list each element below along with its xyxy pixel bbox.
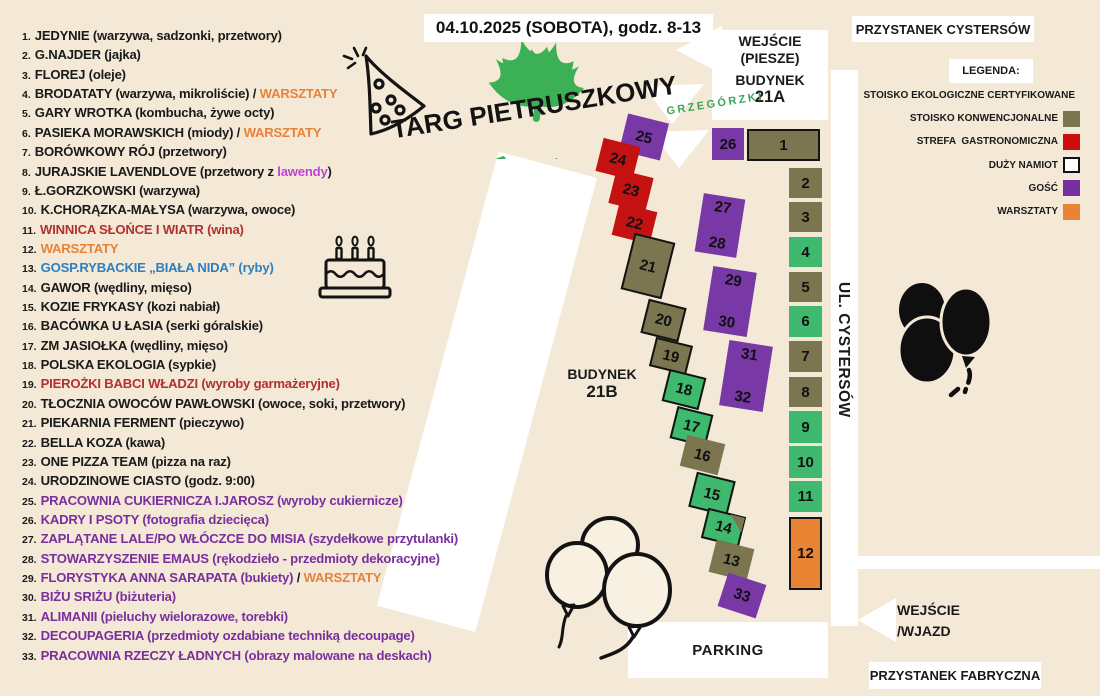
stall-number: 1 [779,137,787,154]
stall-number: 4 [801,244,809,261]
stall-number: 8 [801,384,809,401]
vendor-number: 26. [22,515,37,527]
vendor-text: JURAJSKIE LAVENDLOVE (przetwory z [35,164,278,179]
stall-number: 11 [798,488,814,505]
vendor-text: PIEROŻKI BABCI WŁADZI (wyroby garmażeryj… [41,376,340,391]
stall-9: 9 [789,411,822,443]
legend-swatch-guest [1063,180,1080,196]
legend-swatch-workshop [1063,204,1080,220]
stall-12: 12 [789,517,822,590]
stall-number: 12 [797,545,814,562]
vendor-item-11: 11.WINNICA SŁOŃCE I WIATR (wina) [22,220,458,239]
stall-number: 23 [621,180,641,201]
stall-number: 13 [721,550,741,571]
vendor-text: BRODATATY (warzywa, mikroliście) / [35,86,260,101]
vendor-number: 33. [22,651,37,663]
vendor-text: PRACOWNIA CUKIERNICZA I.JAROSZ (wyroby c… [41,493,403,508]
stall-29-30: 2930 [703,266,757,337]
vendor-item-2: 2.G.NAJDER (jajka) [22,45,458,64]
stall-number: 26 [720,136,737,153]
legend-label: STOISKO EKOLOGICZNE CERTYFIKOWANE [864,90,1076,101]
stall-21: 21 [621,233,676,299]
vendor-item-29: 29.FLORYSTYKA ANNA SARAPATA (bukiety) / … [22,568,458,587]
stall-8: 8 [789,377,822,407]
stall-14-wedge [727,514,745,532]
vendor-item-27: 27.ZAPLĄTANE LALE/PO WŁÓCZCE DO MISIA (s… [22,529,458,548]
vendor-text: STOWARZYSZENIE EMAUS (rękodzieło - przed… [41,551,440,566]
bus-stop-fabryczna: PRZYSTANEK FABRYCZNA [869,662,1041,689]
stall-number: 21 [638,256,658,277]
vendor-number: 29. [22,573,37,585]
vendor-number: 14. [22,283,37,295]
stall-33: 33 [718,573,767,619]
bus-stop-cystersow: PRZYSTANEK CYSTERSÓW [852,16,1034,42]
vendor-number: 3. [22,70,31,82]
legend-label: WARSZTATY [997,206,1058,217]
stall-10: 10 [789,446,822,478]
legend-title: LEGENDA: [949,59,1033,83]
legend-label: STOISKO KONWENCJONALNE [910,113,1058,124]
vendor-item-26: 26.KADRY I PSOTY (fotografia dziecięca) [22,510,458,529]
vendor-item-12: 12.WARSZTATY [22,239,458,258]
drive-entrance-line1: WEJŚCIE [897,600,960,621]
vendor-text: ZAPLĄTANE LALE/PO WŁÓCZCE DO MISIA (szyd… [41,531,458,546]
stall-number: 2 [801,175,809,192]
vendor-item-13: 13.GOSP.RYBACKIE „BIAŁA NIDA” (ryby) [22,258,458,277]
vendor-number: 22. [22,438,37,450]
stall-31-32: 3132 [719,340,773,412]
vendor-text: PRACOWNIA RZECZY ŁADNYCH (obrazy malowan… [41,648,432,663]
legend-item: WARSZTATY [880,200,1080,223]
stall-19: 19 [649,337,693,375]
vendor-item-16: 16.BACÓWKA U ŁASIA (serki góralskie) [22,316,458,335]
vendor-text: FLORYSTYKA ANNA SARAPATA (bukiety) [41,570,297,585]
stall-15: 15 [688,472,736,517]
vendor-number: 30. [22,592,37,604]
vendor-text: BACÓWKA U ŁASIA (serki góralskie) [41,318,263,333]
vendor-text: WARSZTATY [244,125,322,140]
stall-number: 9 [801,419,809,436]
legend-swatch-tent [1063,157,1080,173]
building-21b-name: BUDYNEK [560,366,644,383]
vendor-text: ONE PIZZA TEAM (pizza na raz) [41,454,231,469]
vendor-text: GAWOR (wędliny, mięso) [41,280,192,295]
vendor-text: ZM JASIOŁKA (wędliny, mięso) [41,338,228,353]
drive-entrance-line2: /WJAZD [897,621,960,642]
vendor-number: 9. [22,186,31,198]
stall-6: 6 [789,306,822,337]
stall-23: 23 [608,169,653,212]
vendor-number: 6. [22,128,31,140]
vendor-number: 17. [22,341,37,353]
vendor-text: URODZINOWE CIASTO (godz. 9:00) [41,473,255,488]
vendor-item-10: 10.K.CHORĄZKA-MAŁYSA (warzywa, owoce) [22,200,458,219]
stall-number: 14 [713,517,733,538]
vendor-number: 13. [22,263,37,275]
vendor-item-1: 1.JEDYNIE (warzywa, sadzonki, przetwory) [22,26,458,45]
vendor-item-5: 5.GARY WROTKA (kombucha, żywe octy) [22,103,458,122]
vendor-text: WINNICA SŁOŃCE I WIATR (wina) [40,222,244,237]
vendor-number: 7. [22,147,31,159]
stall-18: 18 [662,369,707,410]
vendor-number: 10. [22,205,37,217]
stall-number: 18 [674,379,694,400]
stall-7: 7 [789,341,822,372]
arrow-down-path-icon [651,130,711,168]
street-cystersow-label: UL. CYSTERSÓW [834,282,852,418]
vendor-item-32: 32.DECOUPAGERIA (przedmioty ozdabiane te… [22,626,458,645]
vendor-number: 18. [22,360,37,372]
vendor-number: 1. [22,31,31,43]
stall-13: 13 [709,540,755,581]
stall-number: 27 [713,199,732,216]
legend-label: GOŚĆ [1029,183,1058,194]
stall-11: 11 [789,481,822,512]
stall-22: 22 [612,203,658,244]
stall-number: 31 [740,346,759,363]
pedestrian-entrance-line1: WEJŚCIE [712,33,828,50]
parking-label: PARKING [692,642,764,659]
vendor-text: WARSZTATY [260,86,338,101]
vendor-number: 27. [22,534,37,546]
vendor-text: FLOREJ (oleje) [35,67,126,82]
legend-label: STREFA GASTRONOMICZNA [917,136,1058,147]
vendor-text: G.NAJDER (jajka) [35,47,141,62]
vendor-text: TŁOCZNIA OWOCÓW PAWŁOWSKI (owoce, soki, … [41,396,406,411]
stall-number: 29 [724,272,743,289]
vendor-text: WARSZTATY [41,241,119,256]
stall-4: 4 [789,237,822,267]
vendor-item-21: 21.PIEKARNIA FERMENT (pieczywo) [22,413,458,432]
vendor-item-15: 15.KOZIE FRYKASY (kozi nabiał) [22,297,458,316]
balloons-outline-icon [533,505,693,665]
vendor-item-23: 23.ONE PIZZA TEAM (pizza na raz) [22,452,458,471]
vendor-text: Ł.GORZKOWSKI (warzywa) [35,183,200,198]
stall-number: 15 [702,484,722,505]
vendor-text: BORÓWKOWY RÓJ (przetwory) [35,144,227,159]
vendor-number: 2. [22,50,31,62]
vendor-item-25: 25.PRACOWNIA CUKIERNICZA I.JAROSZ (wyrob… [22,491,458,510]
vendor-text: lawendy [277,164,327,179]
vendor-number: 15. [22,302,37,314]
vendor-text: / [297,570,304,585]
stall-number: 22 [624,213,644,234]
vendor-item-7: 7.BORÓWKOWY RÓJ (przetwory) [22,142,458,161]
stall-number: 5 [801,279,809,296]
stall-14: 14 [701,508,746,548]
stall-5: 5 [789,272,822,302]
stall-number: 32 [733,389,752,406]
legend-label: DUŻY NAMIOT [989,160,1058,171]
vendor-number: 23. [22,457,37,469]
vendor-text: PIEKARNIA FERMENT (pieczywo) [41,415,244,430]
stall-number: 19 [661,346,681,367]
vendor-list: 1.JEDYNIE (warzywa, sadzonki, przetwory)… [22,26,458,665]
vendor-text: BIŻU SRIŻU (biżuteria) [41,589,176,604]
vendor-text: KOZIE FRYKASY (kozi nabiał) [41,299,220,314]
building-21a-name: BUDYNEK [712,72,828,88]
vendor-text: ALIMANII (pieluchy wielorazowe, torebki) [41,609,288,624]
vendor-number: 31. [22,612,37,624]
vendor-item-33: 33.PRACOWNIA RZECZY ŁADNYCH (obrazy malo… [22,646,458,665]
stall-1: 1 [747,129,820,161]
vendor-number: 4. [22,89,31,101]
stall-number: 28 [708,235,727,252]
pedestrian-entrance-label: WEJŚCIE (PIESZE) [712,33,828,67]
pedestrian-entrance-line2: (PIESZE) [712,50,828,67]
vendor-text: ) [328,164,332,179]
vendor-number: 20. [22,399,37,411]
stall-number: 16 [692,445,712,466]
vendor-number: 24. [22,476,37,488]
legend-item: STREFA GASTRONOMICZNA [880,130,1080,153]
stall-number: 10 [797,454,814,471]
vendor-number: 19. [22,379,37,391]
vendor-item-19: 19.PIEROŻKI BABCI WŁADZI (wyroby garmaże… [22,374,458,393]
vendor-text: GOSP.RYBACKIE „BIAŁA NIDA” (ryby) [41,260,274,275]
vendor-number: 32. [22,631,37,643]
drive-entrance-label: WEJŚCIE /WJAZD [897,600,960,642]
building-21b-number: 21B [560,383,644,401]
stall-17: 17 [670,406,714,447]
stall-number: 30 [717,314,736,331]
stall-2: 2 [789,168,822,198]
stall-3: 3 [789,202,822,232]
legend-swatch-gastro [1063,134,1080,150]
legend-item: STOISKO EKOLOGICZNE CERTYFIKOWANE [880,84,1080,107]
vendor-number: 5. [22,108,31,120]
arrow-left-drive-icon [858,598,896,642]
vendor-item-8: 8.JURAJSKIE LAVENDLOVE (przetwory z lawe… [22,162,458,181]
legend-item: GOŚĆ [880,177,1080,200]
vendor-text: BELLA KOZA (kawa) [41,435,165,450]
stall-number: 17 [681,416,701,437]
vendor-item-20: 20.TŁOCZNIA OWOCÓW PAWŁOWSKI (owoce, sok… [22,394,458,413]
vendor-item-28: 28.STOWARZYSZENIE EMAUS (rękodzieło - pr… [22,549,458,568]
vendor-text: DECOUPAGERIA (przedmioty ozdabiane techn… [41,628,415,643]
legend: STOISKO EKOLOGICZNE CERTYFIKOWANESTOISKO… [880,84,1080,223]
vendor-text: KADRY I PSOTY (fotografia dziecięca) [41,512,269,527]
legend-item: STOISKO KONWENCJONALNE [880,107,1080,130]
vendor-text: K.CHORĄZKA-MAŁYSA (warzywa, owoce) [41,202,296,217]
vendor-item-22: 22.BELLA KOZA (kawa) [22,433,458,452]
stall-27-28: 2728 [695,193,746,258]
vendor-number: 11. [22,225,36,237]
balloons-filled-icon [892,278,997,403]
vendor-text: WARSZTATY [304,570,382,585]
vendor-number: 21. [22,418,37,430]
vendor-item-17: 17.ZM JASIOŁKA (wędliny, mięso) [22,336,458,355]
side-road-band [858,556,1100,569]
vendor-item-3: 3.FLOREJ (oleje) [22,65,458,84]
vendor-number: 12. [22,244,37,256]
vendor-text: POLSKA EKOLOGIA (sypkie) [41,357,216,372]
vendor-number: 25. [22,496,37,508]
legend-swatch-conventional [1063,111,1080,127]
vendor-item-4: 4.BRODATATY (warzywa, mikroliście) / WAR… [22,84,458,103]
vendor-text: JEDYNIE (warzywa, sadzonki, przetwory) [35,28,282,43]
vendor-item-9: 9.Ł.GORZKOWSKI (warzywa) [22,181,458,200]
date-banner: 04.10.2025 (SOBOTA), godz. 8-13 [424,14,713,42]
building-21b-label: BUDYNEK 21B [560,366,644,401]
vendor-item-24: 24.URODZINOWE CIASTO (godz. 9:00) [22,471,458,490]
stall-20: 20 [640,299,686,342]
stall-number: 7 [801,348,809,365]
stall-number: 20 [653,310,673,331]
vendor-number: 28. [22,554,37,566]
vendor-item-14: 14.GAWOR (wędliny, mięso) [22,278,458,297]
market-map-poster: 1.JEDYNIE (warzywa, sadzonki, przetwory)… [0,0,1100,696]
vendor-item-6: 6.PASIEKA MORAWSKICH (miody) / WARSZTATY [22,123,458,142]
vendor-item-31: 31.ALIMANII (pieluchy wielorazowe, toreb… [22,607,458,626]
vendor-number: 8. [22,167,31,179]
vendor-text: GARY WROTKA (kombucha, żywe octy) [35,105,275,120]
vendor-item-18: 18.POLSKA EKOLOGIA (sypkie) [22,355,458,374]
vendor-text: PASIEKA MORAWSKICH (miody) / [35,125,244,140]
vendor-number: 16. [22,321,37,333]
stall-number: 6 [801,313,809,330]
stall-16: 16 [680,435,726,475]
legend-item: DUŻY NAMIOT [880,154,1080,177]
vendor-item-30: 30.BIŻU SRIŻU (biżuteria) [22,587,458,606]
stall-number: 33 [731,585,752,606]
stall-26: 26 [712,128,744,160]
stall-number: 3 [801,209,809,226]
